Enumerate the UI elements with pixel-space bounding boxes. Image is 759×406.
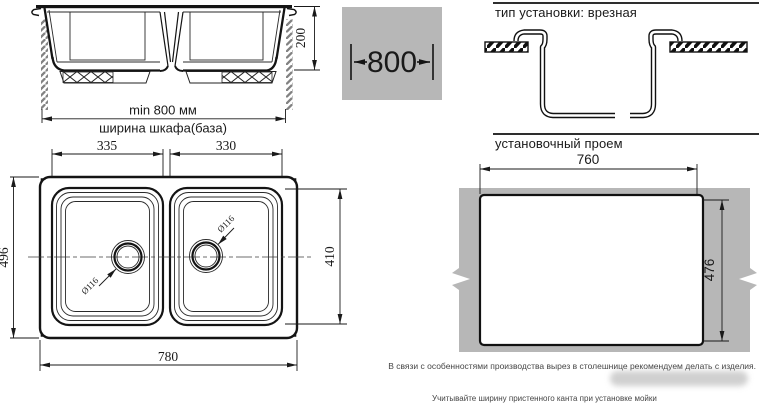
dim-overall-width-label: 780 (158, 349, 179, 364)
sink-profile (516, 32, 680, 116)
opening-drawing: 760 476 (440, 150, 759, 360)
dim-right-bowl-label: 330 (216, 140, 237, 153)
cutout-rect (480, 195, 703, 345)
install-note: Учитывайте ширину пристенного канта при … (432, 394, 657, 403)
countertop-section (485, 42, 747, 52)
dim-left-bowl-label: 335 (97, 140, 118, 153)
cabinet-side-right (286, 19, 293, 110)
dim-depth-label: 200 (293, 28, 308, 49)
dim-330-lines (170, 149, 282, 176)
top-view-drawing: Ø116 Ø116 335 330 496 410 (0, 140, 360, 375)
cabinet-width-label: ширина шкафа(база) (99, 121, 227, 136)
dim-335-lines (52, 149, 163, 176)
section-rule-top (493, 2, 759, 4)
cabinet-side-left (41, 19, 48, 110)
dim-overall-depth-label: 496 (0, 247, 11, 268)
cabinet-width-spec-box: 800 (342, 7, 442, 100)
sink-rim (36, 5, 292, 8)
dim-bowl-length-label: 410 (322, 246, 337, 267)
spec-box-width-value: 800 (367, 46, 417, 79)
sink-spec-sheet: 200 min 800 мм ширина шкафа(база) 800 ти… (0, 0, 759, 406)
dim-opening-height-label: 476 (702, 259, 717, 282)
watermark (610, 371, 748, 386)
dim-496-lines (10, 177, 39, 338)
min-width-label: min 800 мм (129, 103, 197, 118)
cross-section-drawing (478, 18, 759, 126)
dim-opening-width-label: 760 (577, 152, 600, 167)
production-note: В связи с особенностями производства выр… (388, 361, 756, 371)
opening-title: установочный проем (495, 136, 623, 151)
front-view-drawing: 200 min 800 мм ширина шкафа(база) (0, 0, 335, 140)
base-section (60, 72, 276, 84)
section-rule-middle (493, 133, 759, 135)
